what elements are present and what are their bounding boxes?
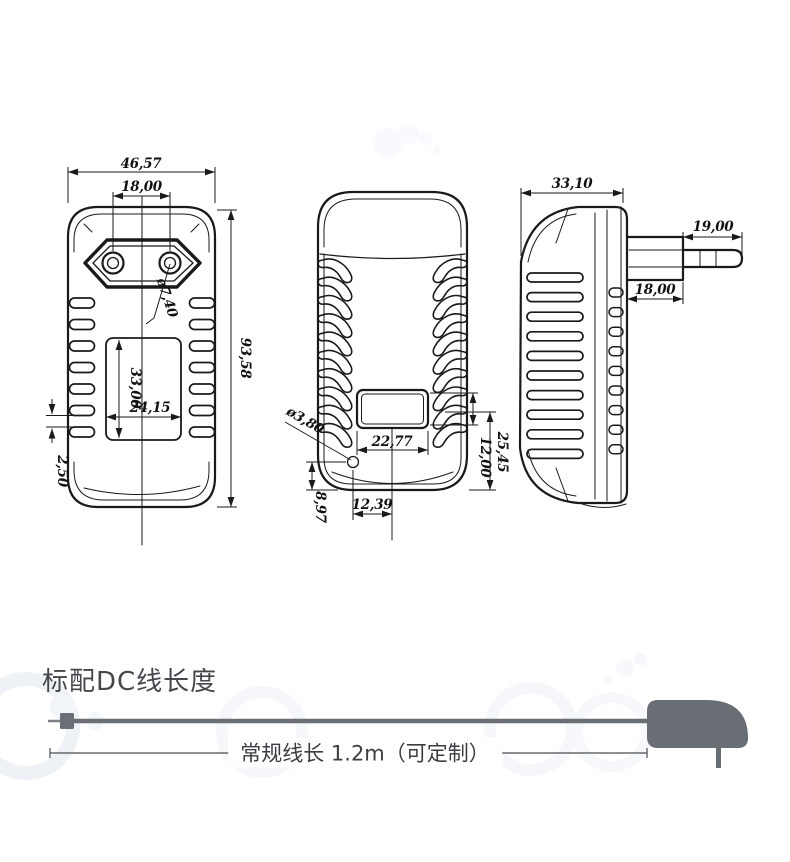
- watermark-dot: [604, 675, 613, 684]
- watermark-dot: [616, 659, 634, 677]
- side-dim-pin-length: 19,00: [683, 219, 742, 262]
- back-dim-hole-diameter: ø3,80: [283, 403, 351, 460]
- dc-plug-barrel: [60, 713, 74, 729]
- adapter-plug-pin: [716, 748, 721, 768]
- front-height-value: 93,58: [237, 338, 253, 380]
- page: 46,57 18,00 ø7,40 93,58 33,00: [0, 0, 790, 862]
- back-vents-left: [318, 259, 352, 447]
- side-pin-length-value: 19,00: [693, 219, 735, 235]
- dimension-drawing: 46,57 18,00 ø7,40 93,58 33,00: [0, 0, 790, 660]
- back-dim-hole-center-offset: 12,39: [352, 470, 394, 520]
- side-vents-left: [527, 273, 583, 458]
- back-window-width-value: 22,77: [371, 434, 414, 450]
- adapter-silhouette: [647, 700, 748, 748]
- side-depth-value: 33,10: [552, 176, 594, 192]
- back-window-bottom-offset-value: 25,45: [494, 431, 510, 473]
- back-hole-bottom-offset-value: 8,97: [312, 491, 328, 524]
- back-vents-right: [433, 259, 467, 447]
- front-pin-diameter-value: ø7,40: [153, 275, 181, 320]
- back-hole-diameter-value: ø3,80: [283, 403, 328, 438]
- front-width-value: 46,57: [121, 156, 163, 172]
- front-dim-height: 93,58: [217, 210, 253, 507]
- front-view: 46,57 18,00 ø7,40 93,58 33,00: [46, 156, 253, 545]
- side-dim-depth: 33,10: [521, 176, 623, 256]
- side-dim-pin-base-width: 18,00: [627, 282, 683, 304]
- front-vent-gap-value: 2,50: [54, 454, 70, 488]
- front-dim-label-height: 33,00: [119, 340, 143, 438]
- side-pin-base-width-value: 18,00: [635, 282, 677, 298]
- side-view: 33,10 19,00 18,00: [520, 176, 742, 508]
- cable-length-label: 常规线长 1.2m（可定制）: [228, 737, 502, 767]
- front-label-width-value: 24,15: [129, 400, 171, 416]
- front-pin-spacing-value: 18,00: [121, 179, 163, 195]
- back-view: ø3,80 22,77 12,39 8,97: [283, 192, 510, 540]
- front-dim-label-width: 24,15: [106, 400, 181, 417]
- back-hole-center-offset-value: 12,39: [352, 497, 394, 513]
- back-window-height-value: 12,00: [477, 437, 493, 479]
